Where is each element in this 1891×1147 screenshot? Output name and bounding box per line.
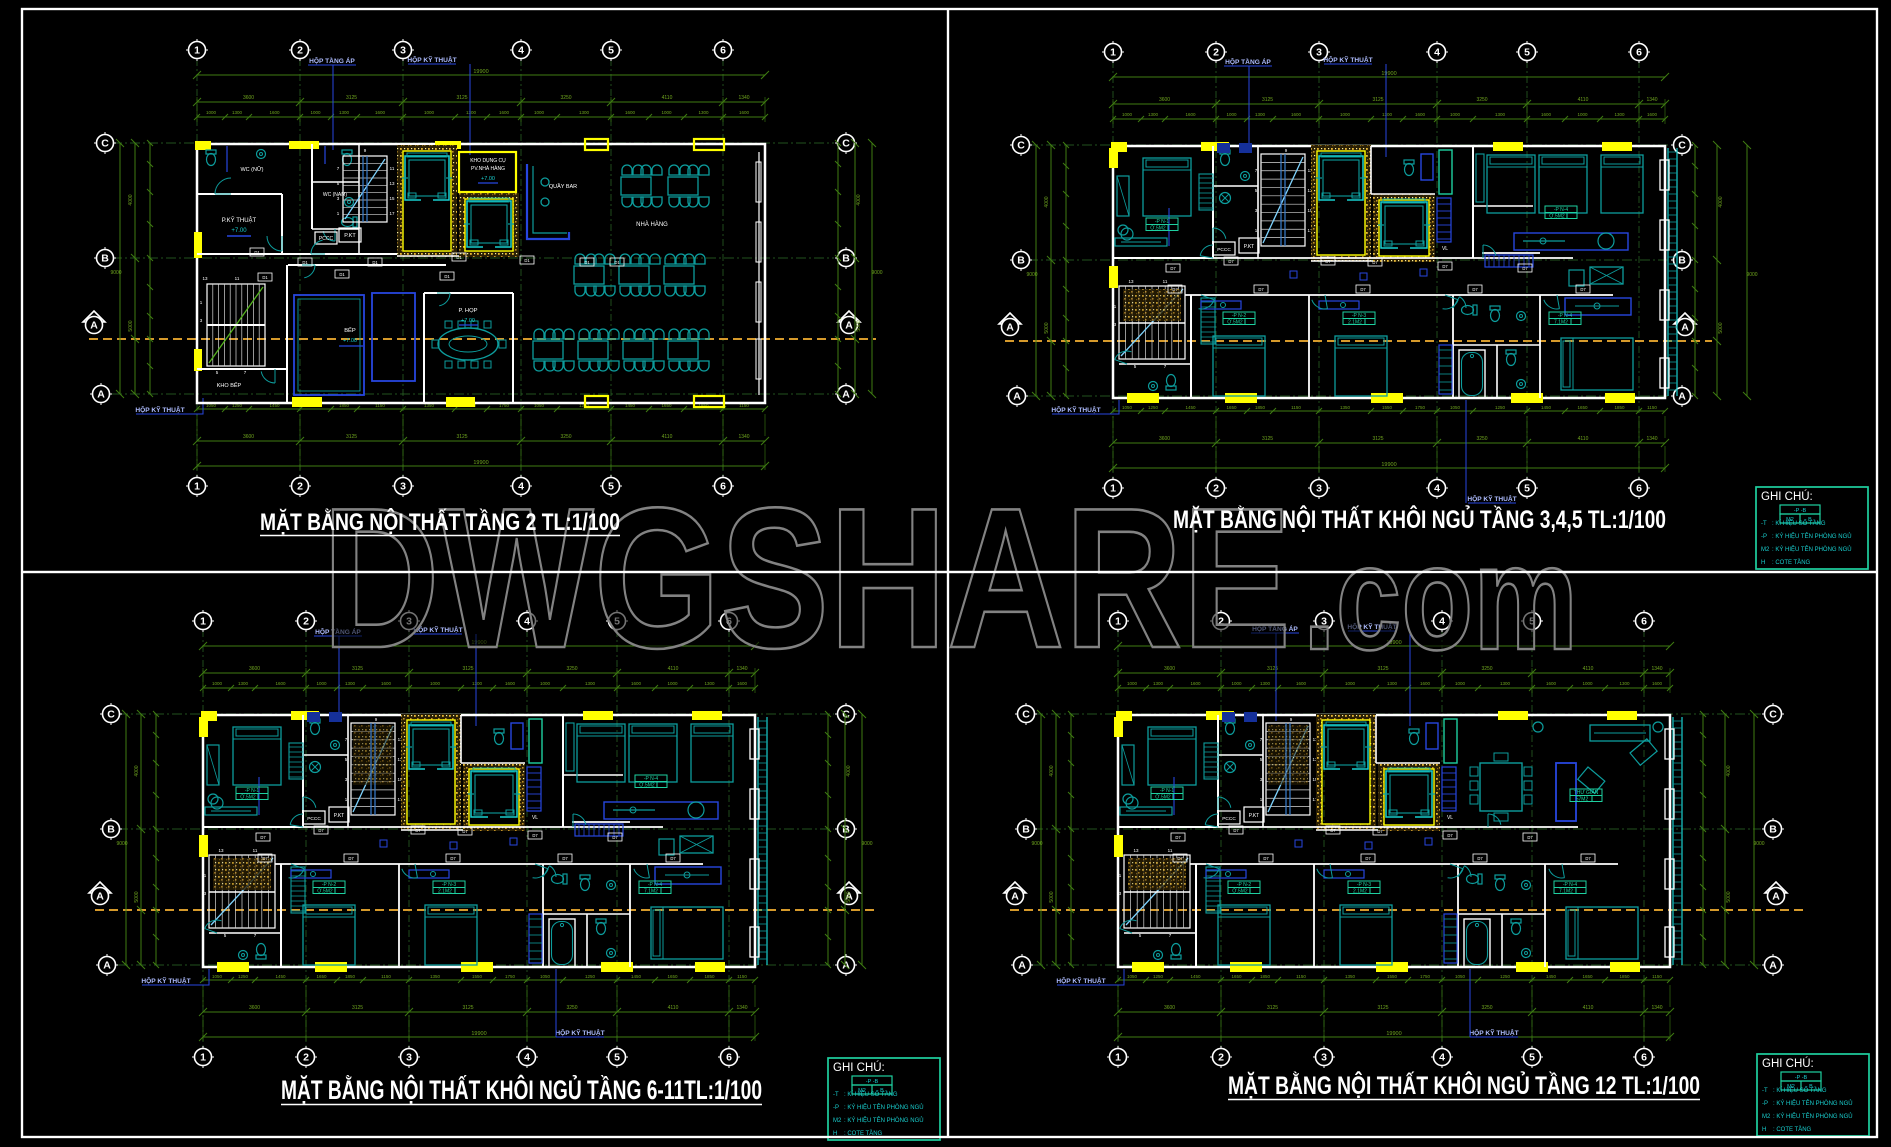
svg-text:Ở.5M2: Ở.5M2 [639,782,655,789]
svg-text:3125: 3125 [1377,1005,1388,1011]
svg-text:1000: 1000 [1577,112,1588,117]
svg-text:D1: D1 [302,260,308,265]
svg-text:DWGSHARE: DWGSHARE [322,467,1291,690]
svg-text:3125: 3125 [1372,97,1383,103]
svg-text:+7.00: +7.00 [461,318,475,324]
svg-text:Ở.5M2: Ở.5M2 [1150,225,1166,232]
svg-text:D7: D7 [1263,856,1269,861]
svg-text:P.KT: P.KT [1244,244,1254,250]
svg-text:C: C [107,709,115,721]
svg-text:1050: 1050 [212,974,223,979]
svg-text:19900: 19900 [473,460,488,466]
svg-text:13: 13 [1128,279,1134,284]
svg-text:: KÝ HIỆU TÊN PHÒNG NGỦ: : KÝ HIỆU TÊN PHÒNG NGỦ [1772,545,1852,553]
svg-text:A: A [1018,960,1026,972]
svg-text:D7: D7 [1585,856,1591,861]
svg-text:1850: 1850 [1255,405,1266,410]
svg-text:1450: 1450 [1185,405,1196,410]
svg-text:9000: 9000 [1746,272,1757,278]
svg-text:3125: 3125 [346,95,357,101]
svg-text:1250: 1250 [585,974,596,979]
svg-text:1450: 1450 [275,974,286,979]
svg-text:A: A [1678,391,1686,403]
svg-text:B: B [1017,255,1025,267]
svg-text:D1: D1 [584,260,590,265]
svg-text:1850: 1850 [345,974,356,979]
svg-text:+7.00: +7.00 [231,228,247,234]
svg-text:19900: 19900 [473,69,488,75]
svg-text:: KÝ HIỆU TÊN PHÒNG NGỦ: : KÝ HIỆU TÊN PHÒNG NGỦ [844,1103,924,1111]
svg-text:-P N-3: -P N-3 [1357,882,1372,888]
svg-text:Ở.5M2: Ở.5M2 [1232,888,1248,895]
svg-text:1050: 1050 [540,974,551,979]
svg-text:4000: 4000 [1726,765,1732,776]
svg-text:C: C [1022,709,1030,721]
svg-text:HỘP KỸ THUẬT: HỘP KỸ THUẬT [555,1028,604,1037]
svg-text:: KÍ HIỆU SỐ TẦNG: : KÍ HIỆU SỐ TẦNG [1772,519,1826,527]
svg-text:1600: 1600 [375,110,386,115]
svg-text:1000: 1000 [310,110,321,115]
svg-text:P.KT: P.KT [1249,813,1259,819]
svg-text:1250: 1250 [238,974,249,979]
svg-text:-P N-4: -P N-4 [1563,882,1578,888]
svg-text:D7: D7 [1175,835,1181,840]
svg-text:13: 13 [202,276,208,281]
svg-text:2: 2 [303,616,309,628]
svg-text:1450: 1450 [1546,974,1557,979]
svg-text:-P N-4: -P N-4 [1554,207,1569,213]
svg-text:Ở.5M2: Ở.5M2 [1227,319,1243,326]
svg-text:1000: 1000 [1345,681,1356,686]
svg-text:3125: 3125 [1262,97,1273,103]
svg-text:3: 3 [406,1052,412,1064]
svg-text:: KÝ HIỆU TÊN PHÒNG NGỦ: : KÝ HIỆU TÊN PHÒNG NGỦ [1773,1112,1853,1120]
svg-text:D7: D7 [1360,287,1366,292]
svg-text:Ở.5M2: Ở.5M2 [1155,794,1171,801]
svg-text:A: A [97,389,105,401]
svg-text:1850: 1850 [704,974,715,979]
svg-text:1250: 1250 [1153,974,1164,979]
svg-text:.com: .com [1303,513,1578,681]
svg-text:1340: 1340 [736,1005,747,1011]
svg-text:1300: 1300 [238,681,249,686]
svg-text:1650: 1650 [667,974,678,979]
svg-text:1000: 1000 [212,681,223,686]
svg-text:1600: 1600 [269,110,280,115]
svg-text:D7: D7 [1172,287,1178,292]
svg-text:A: A [103,960,111,972]
svg-text:H: H [1761,560,1765,566]
svg-text:1300: 1300 [466,110,477,115]
svg-text:: KÍ HIỆU SỐ TẦNG: : KÍ HIỆU SỐ TẦNG [844,1090,898,1098]
svg-text:11: 11 [253,848,258,853]
svg-text:QUẦY BAR: QUẦY BAR [549,183,577,190]
svg-text:1600: 1600 [1185,112,1196,117]
svg-text:-P N-4: -P N-4 [644,776,659,782]
svg-text:D7: D7 [670,856,676,861]
svg-text:1050: 1050 [1122,405,1133,410]
svg-text:GHI CHÚ:: GHI CHÚ: [1761,490,1813,503]
svg-text:1600: 1600 [1296,681,1307,686]
svg-text:: COTE TẦNG: : COTE TẦNG [1773,1126,1812,1133]
svg-text:-P -B: -P -B [1795,1075,1808,1081]
svg-text:1300: 1300 [232,110,243,115]
svg-text:1000: 1000 [206,110,217,115]
svg-text:1340: 1340 [1651,1005,1662,1011]
svg-text:: KÍ HIỆU SỐ TẦNG: : KÍ HIỆU SỐ TẦNG [1773,1086,1827,1094]
svg-text:1600: 1600 [1652,681,1663,686]
svg-text:1340: 1340 [1646,436,1657,442]
svg-text:-P: -P [1762,1101,1768,1107]
svg-text:13: 13 [1133,848,1139,853]
svg-text:5000: 5000 [1726,891,1732,902]
svg-text:D1: D1 [444,274,450,279]
svg-text:MẶT BẰNG NỘI THẤT KHÔI NGỦ TẦN: MẶT BẰNG NỘI THẤT KHÔI NGỦ TẦNG 3,4,5 TL… [1173,504,1666,534]
svg-text:57M2: 57M2 [1576,797,1589,803]
svg-text:1600: 1600 [1541,112,1552,117]
svg-text:A: A [90,320,98,332]
svg-text:5000: 5000 [134,891,140,902]
svg-text:4000: 4000 [1049,765,1055,776]
svg-text:9000: 9000 [861,841,872,847]
svg-text:1000: 1000 [1226,112,1237,117]
svg-text:B: B [842,253,850,265]
svg-text:5000: 5000 [1718,322,1724,333]
svg-text:6: 6 [720,45,726,57]
svg-text:1000: 1000 [424,110,435,115]
svg-text:1: 1 [200,616,206,628]
svg-text:B: B [1769,824,1777,836]
svg-text:D7: D7 [415,828,421,833]
svg-text:KHO DỤNG CỤ: KHO DỤNG CỤ [470,158,506,164]
svg-text:D7: D7 [612,835,618,840]
svg-text:1250: 1250 [1500,974,1511,979]
svg-text:D7: D7 [262,856,268,861]
svg-text:B: B [107,824,115,836]
svg-text:3125: 3125 [1267,1005,1278,1011]
svg-text:4110: 4110 [662,95,673,101]
svg-text:A: A [845,320,853,332]
svg-text:Ở.5M2: Ở.5M2 [317,888,333,895]
svg-text:D7: D7 [1472,287,1478,292]
svg-text:1250: 1250 [1148,405,1159,410]
svg-text:4: 4 [524,1052,530,1064]
svg-text:HỘP KỸ THUẬT: HỘP KỸ THUẬT [1323,55,1372,64]
svg-text:1340: 1340 [738,434,749,440]
svg-text:A: A [1769,960,1777,972]
svg-text:1300: 1300 [1619,681,1630,686]
svg-text:A: A [1772,891,1780,903]
svg-text:HỘP KỸ THUẬT: HỘP KỸ THUẬT [407,55,456,64]
svg-text:1550: 1550 [1387,974,1398,979]
svg-text:BẾP: BẾP [344,327,356,334]
svg-text:4000: 4000 [128,194,134,205]
svg-text:D7: D7 [318,828,324,833]
svg-text:MẶT BẰNG NỘI THẤT TẦNG 2 TL:1/: MẶT BẰNG NỘI THẤT TẦNG 2 TL:1/100 [260,508,620,536]
svg-text:D7: D7 [1477,856,1483,861]
svg-text:7.1M2: 7.1M2 [644,889,658,895]
svg-text:4110: 4110 [1578,436,1589,442]
svg-text:-P N-4: -P N-4 [648,882,663,888]
svg-text:1: 1 [194,481,200,493]
svg-text:M2: M2 [833,1118,842,1124]
svg-text:A: A [1006,322,1014,334]
svg-text:1300: 1300 [1500,681,1511,686]
svg-text:15: 15 [389,196,395,201]
svg-text:D7: D7 [1377,829,1383,834]
svg-text:1340: 1340 [1646,97,1657,103]
svg-text:D7: D7 [1177,856,1183,861]
svg-text:-P N-1: -P N-1 [1155,219,1170,225]
svg-text:MẶT BẰNG NỘI THẤT KHÔI NGỦ TẦN: MẶT BẰNG NỘI THẤT KHÔI NGỦ TẦNG 6-11TL:1… [281,1073,762,1105]
svg-text:1600: 1600 [1647,112,1658,117]
svg-text:PV.NHÀ HÀNG: PV.NHÀ HÀNG [471,165,505,172]
svg-text:1000: 1000 [534,110,545,115]
svg-text:6: 6 [1636,483,1642,495]
svg-text:1: 1 [200,1052,206,1064]
svg-text:-P N-2: -P N-2 [1232,313,1247,319]
svg-text:3600: 3600 [243,434,254,440]
svg-text:1050: 1050 [1455,974,1466,979]
svg-text:3250: 3250 [560,95,571,101]
svg-text:6: 6 [1641,1052,1647,1064]
svg-text:1000: 1000 [1582,681,1593,686]
svg-text:3250: 3250 [1481,1005,1492,1011]
svg-text:6: 6 [726,1052,732,1064]
svg-text:4000: 4000 [1044,196,1050,207]
svg-text:M2: M2 [1762,1114,1771,1120]
svg-text:D7: D7 [1372,260,1378,265]
svg-text:D7: D7 [1228,259,1234,264]
svg-text:9000: 9000 [1026,272,1037,278]
svg-text:4000: 4000 [134,765,140,776]
svg-text:-T: -T [1762,1088,1768,1094]
svg-text:1340: 1340 [1651,666,1662,672]
svg-text:D7: D7 [260,835,266,840]
svg-text:: COTE TẦNG: : COTE TẦNG [1772,559,1811,566]
svg-text:1150: 1150 [1647,405,1657,410]
svg-text:1150: 1150 [1296,974,1306,979]
svg-text:2.1M2: 2.1M2 [438,889,452,895]
svg-text:D7: D7 [1365,856,1371,861]
svg-text:1: 1 [1115,1052,1121,1064]
svg-text:9000: 9000 [110,270,121,276]
svg-text:D7: D7 [1258,287,1264,292]
svg-text:MẶT BẰNG NỘI THẤT KHÔI NGỦ TẦN: MẶT BẰNG NỘI THẤT KHÔI NGỦ TẦNG 12 TL:1/… [1228,1070,1700,1100]
svg-text:3250: 3250 [566,1005,577,1011]
svg-text:3600: 3600 [249,666,260,672]
svg-text:9000: 9000 [1031,841,1042,847]
svg-text:-T: -T [833,1092,839,1098]
svg-text:4110: 4110 [1583,1005,1594,1011]
svg-text:D7: D7 [450,856,456,861]
svg-text:HỘP KỸ THUẬT: HỘP KỸ THUẬT [1051,405,1100,414]
svg-text:2: 2 [1218,1052,1224,1064]
svg-text:9000: 9000 [871,270,882,276]
svg-text:-P -B: -P -B [1794,508,1807,514]
svg-text:3125: 3125 [462,1005,473,1011]
svg-text:4110: 4110 [668,1005,679,1011]
svg-text:4: 4 [1434,483,1440,495]
svg-text:1350: 1350 [1345,974,1356,979]
svg-text:D7: D7 [348,856,354,861]
svg-text:1150: 1150 [737,974,747,979]
svg-text:1: 1 [194,45,200,57]
svg-text:1850: 1850 [1619,974,1630,979]
svg-text:11: 11 [1168,848,1173,853]
svg-text:3250: 3250 [560,434,571,440]
svg-text:5: 5 [608,45,614,57]
svg-text:: KÝ HIỆU TÊN PHÒNG NGỦ: : KÝ HIỆU TÊN PHÒNG NGỦ [1772,532,1852,540]
svg-text:1150: 1150 [1652,974,1662,979]
svg-text:D7: D7 [1580,287,1586,292]
svg-text:VL: VL [1442,246,1448,252]
svg-text:GHI CHÚ:: GHI CHÚ: [1762,1057,1814,1070]
svg-text:3: 3 [1316,47,1322,59]
svg-text:D7: D7 [1442,264,1448,269]
svg-text:D7: D7 [562,856,568,861]
svg-text:A: A [96,891,104,903]
svg-text:1550: 1550 [1382,405,1393,410]
svg-text:A: A [842,389,850,401]
svg-text:1300: 1300 [698,110,709,115]
svg-text:3600: 3600 [243,95,254,101]
svg-text:1340: 1340 [738,95,749,101]
svg-text:1600: 1600 [499,110,510,115]
svg-text:B: B [101,253,109,265]
svg-text:WC (NỮ): WC (NỮ) [240,166,263,173]
svg-text:3125: 3125 [352,1005,363,1011]
svg-text:1450: 1450 [1190,974,1201,979]
svg-text:C: C [101,138,109,150]
svg-text:1300: 1300 [1382,112,1393,117]
svg-text:19900: 19900 [1381,71,1396,77]
svg-text:1600: 1600 [1546,681,1557,686]
svg-text:1850: 1850 [1614,405,1625,410]
svg-text:3600: 3600 [1159,97,1170,103]
svg-text:1650: 1650 [1577,405,1588,410]
svg-text:C: C [1017,140,1025,152]
svg-text:6: 6 [1636,47,1642,59]
svg-text:5000: 5000 [846,891,852,902]
svg-text:PCCC: PCCC [1222,816,1236,822]
svg-text:-P: -P [1761,534,1767,540]
svg-text:19900: 19900 [1386,1031,1401,1037]
svg-text:1300: 1300 [1387,681,1398,686]
svg-text:1450: 1450 [631,974,642,979]
svg-text:19900: 19900 [1381,462,1396,468]
svg-text:13: 13 [218,848,224,853]
svg-text:1750: 1750 [1420,974,1431,979]
svg-text:A: A [1011,891,1019,903]
svg-text:-P N-3: -P N-3 [1352,313,1367,319]
svg-text:-P N-3: -P N-3 [442,882,457,888]
svg-text:PCCC: PCCC [307,816,321,822]
svg-text:17: 17 [389,211,395,216]
svg-text:7.1M2: 7.1M2 [1559,889,1573,895]
svg-text:Ở.5M2: Ở.5M2 [1549,213,1565,220]
svg-text:4000: 4000 [1718,196,1724,207]
svg-text:2: 2 [1213,47,1219,59]
svg-text:4: 4 [518,45,524,57]
svg-text:HỘP KỸ THUẬT: HỘP KỸ THUẬT [1469,1028,1518,1037]
svg-text:HỘP KỸ THUẬT: HỘP KỸ THUẬT [1467,494,1516,503]
svg-text:3125: 3125 [1262,436,1273,442]
svg-text:-P N-2: -P N-2 [1237,882,1252,888]
svg-text:3: 3 [1321,1052,1327,1064]
svg-text:1600: 1600 [1415,112,1426,117]
svg-text:1150: 1150 [381,974,391,979]
svg-text:5000: 5000 [856,320,862,331]
svg-text:-P: -P [833,1105,839,1111]
svg-text:3125: 3125 [456,434,467,440]
svg-text:2: 2 [303,1052,309,1064]
svg-text:3125: 3125 [346,434,357,440]
svg-text:D1: D1 [524,258,530,263]
svg-text:: KÝ HIỆU TÊN PHÒNG NGỦ: : KÝ HIỆU TÊN PHÒNG NGỦ [844,1116,924,1124]
svg-text:1300: 1300 [579,110,590,115]
svg-text:D1: D1 [614,260,620,265]
svg-text:1650: 1650 [1582,974,1593,979]
svg-text:1050: 1050 [1450,405,1461,410]
svg-text:D1: D1 [262,275,268,280]
svg-text:D1: D1 [456,255,462,260]
svg-text:-T: -T [1761,521,1767,527]
svg-text:1350: 1350 [1340,405,1351,410]
svg-text:NHÀ HÀNG: NHÀ HÀNG [636,221,668,228]
svg-text:3250: 3250 [1476,436,1487,442]
svg-text:: KÝ HIỆU TÊN PHÒNG NGỦ: : KÝ HIỆU TÊN PHÒNG NGỦ [1773,1099,1853,1107]
svg-text:A: A [1013,391,1021,403]
svg-text:D7: D7 [462,829,468,834]
svg-text:4: 4 [1439,1052,1445,1064]
svg-text:4000: 4000 [846,765,852,776]
svg-text:5: 5 [1529,1052,1535,1064]
svg-text:1750: 1750 [1415,405,1426,410]
svg-text:D7: D7 [1527,835,1533,840]
svg-text:3125: 3125 [1372,436,1383,442]
svg-text:7.1M2: 7.1M2 [1554,320,1568,326]
svg-text:H: H [1762,1127,1766,1133]
svg-text:1000: 1000 [1122,112,1133,117]
svg-text:1600: 1600 [625,110,636,115]
svg-text:2: 2 [297,45,303,57]
svg-text:3600: 3600 [249,1005,260,1011]
svg-text:4110: 4110 [1578,97,1589,103]
svg-text:-P N-4: -P N-4 [1558,313,1573,319]
svg-text:2: 2 [297,481,303,493]
svg-text:1: 1 [1110,47,1116,59]
svg-text:1600: 1600 [1291,112,1302,117]
svg-text:5: 5 [614,1052,620,1064]
svg-text:D7: D7 [1447,833,1453,838]
svg-text:P.KT: P.KT [334,813,344,819]
svg-text:1650: 1650 [1231,974,1242,979]
svg-text:5000: 5000 [1049,891,1055,902]
svg-text:5: 5 [1524,47,1530,59]
svg-text:VL: VL [532,815,538,821]
svg-text:1000: 1000 [1450,112,1461,117]
svg-text:3: 3 [1316,483,1322,495]
svg-text:3600: 3600 [1164,1005,1175,1011]
svg-text:4110: 4110 [1583,666,1594,672]
svg-text:1150: 1150 [1291,405,1301,410]
svg-text:1450: 1450 [1541,405,1552,410]
svg-text:5000: 5000 [128,320,134,331]
svg-text:HỘP KỸ THUẬT: HỘP KỸ THUẬT [1056,976,1105,985]
svg-text:1300: 1300 [1255,112,1266,117]
svg-text:P.KT: P.KT [344,233,356,239]
